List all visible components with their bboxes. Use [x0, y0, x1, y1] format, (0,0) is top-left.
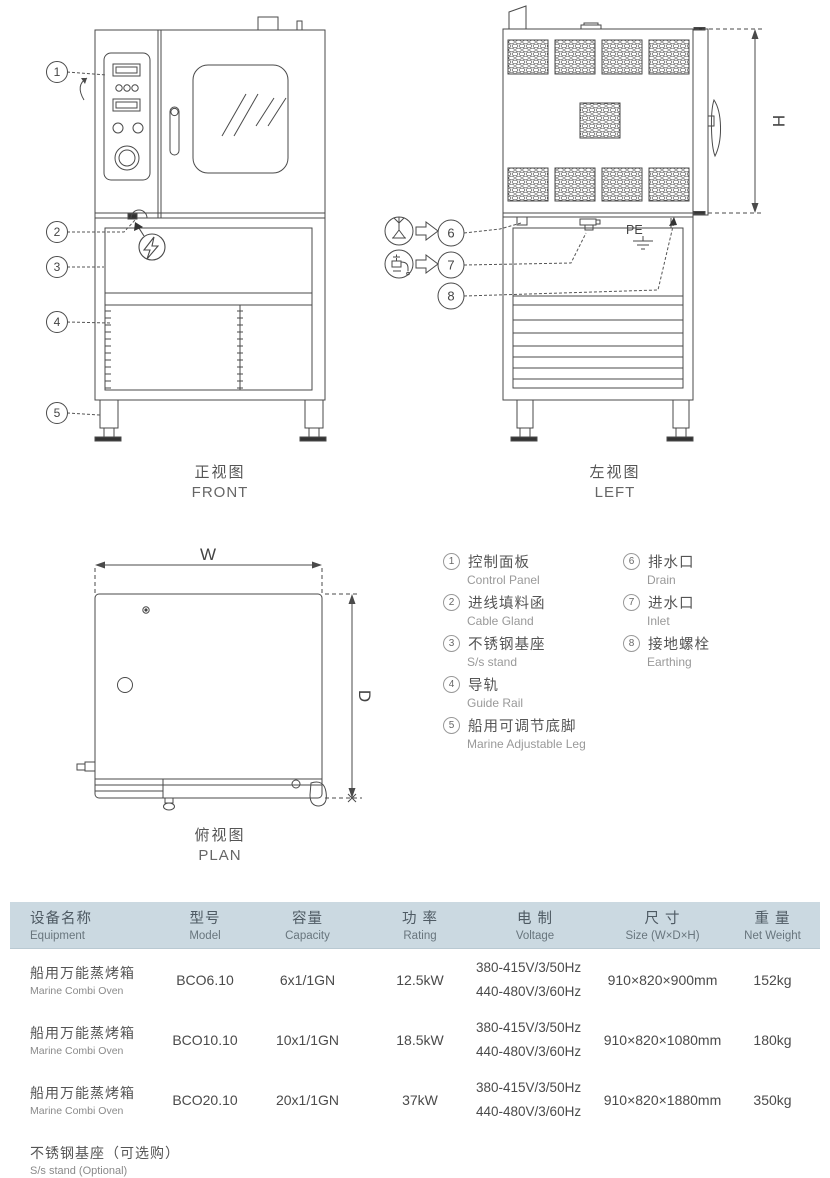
- cell-size: 910×820×900mm: [600, 972, 725, 988]
- plan-view-drawing: W D: [60, 538, 380, 823]
- spec-sheet: 1 2 3 4 5: [0, 0, 830, 1178]
- legend-item-cable-gland: 2进线填料函 Cable Gland: [443, 592, 628, 628]
- cell-voltage: 380-415V/3/50Hz 440-480V/3/60Hz: [470, 956, 600, 1004]
- cell-model: BCO6.10: [165, 972, 245, 988]
- side-pipe: [77, 762, 95, 771]
- oven-body-plan: [95, 594, 322, 798]
- table-row-bco10: 船用万能蒸烤箱 Marine Combi Oven BCO10.10 10x1/…: [10, 1009, 820, 1069]
- adjustable-legs-front: [95, 400, 326, 441]
- cell-rating: 37kW: [370, 1092, 470, 1108]
- legend-item-earthing: 8接地螺栓 Earthing: [623, 633, 808, 669]
- oven-body-front: [95, 30, 325, 218]
- cell-equipment: 船用万能蒸烤箱 Marine Combi Oven: [10, 963, 165, 997]
- floor-drain-symbol-icon: [385, 217, 413, 245]
- legend-item-guide-rail: 4导轨 Guide Rail: [443, 674, 628, 710]
- dim-label-w: W: [200, 545, 216, 564]
- door-strips-plan: [95, 779, 322, 798]
- guide-rail-ticks: [105, 311, 243, 388]
- legend-column-1: 1控制面板 Control Panel 2进线填料函 Cable Gland 3…: [443, 551, 628, 756]
- legend-num-7: 7: [623, 594, 640, 611]
- header-weight: 重 量Net Weight: [725, 907, 820, 942]
- cell-rating: 12.5kW: [370, 972, 470, 988]
- dimension-w: [95, 562, 322, 595]
- plan-view-label: 俯视图 PLAN: [145, 824, 295, 864]
- legend-num-5: 5: [443, 717, 460, 734]
- cell-model: BCO20.10: [165, 1092, 245, 1108]
- legend-item-inlet: 7进水口 Inlet: [623, 592, 808, 628]
- cell-equipment: 船用万能蒸烤箱 Marine Combi Oven: [10, 1023, 165, 1057]
- table-row-bco20: 船用万能蒸烤箱 Marine Combi Oven BCO20.10 20x1/…: [10, 1069, 820, 1129]
- cell-capacity: 10x1/1GN: [245, 1032, 370, 1048]
- water-tap-symbol-icon: [385, 250, 413, 278]
- header-equipment: 设备名称Equipment: [10, 907, 165, 942]
- header-voltage: 电 制Voltage: [470, 907, 600, 942]
- cell-size: 910×820×1880mm: [600, 1092, 725, 1108]
- table-footnote: 不锈钢基座（可选购） S/s stand (Optional): [10, 1143, 820, 1177]
- legend-item-ss-stand: 3不锈钢基座 S/s stand: [443, 633, 628, 669]
- stand-left: [503, 217, 693, 441]
- legend-num-2: 2: [443, 594, 460, 611]
- cell-weight: 152kg: [725, 972, 820, 988]
- left-view-drawing: 6 7 8 H PE: [375, 0, 830, 450]
- callout-2: 2: [54, 225, 61, 239]
- vent-panels: [508, 40, 689, 201]
- front-callouts: [47, 62, 68, 424]
- legend-num-6: 6: [623, 553, 640, 570]
- callout-7: 7: [447, 258, 454, 273]
- legend-num-4: 4: [443, 676, 460, 693]
- cell-weight: 350kg: [725, 1092, 820, 1108]
- callout-5: 5: [54, 406, 61, 420]
- header-capacity: 容量Capacity: [245, 907, 370, 942]
- header-model: 型号Model: [165, 907, 245, 942]
- door-window: [193, 65, 288, 173]
- spec-table: 设备名称Equipment 型号Model 容量Capacity 功 率Rati…: [10, 902, 820, 1177]
- door-edge-left: [693, 28, 721, 216]
- header-rating: 功 率Rating: [370, 907, 470, 942]
- legend-num-3: 3: [443, 635, 460, 652]
- earthing-label-pe: PE: [626, 223, 643, 237]
- cell-weight: 180kg: [725, 1032, 820, 1048]
- callout-6: 6: [447, 226, 454, 241]
- cell-rating: 18.5kW: [370, 1032, 470, 1048]
- legend-item-adjustable-leg: 5船用可调节底脚 Marine Adjustable Leg: [443, 715, 628, 751]
- legend-num-1: 1: [443, 553, 460, 570]
- legend-num-8: 8: [623, 635, 640, 652]
- front-view-label: 正视图 FRONT: [145, 461, 295, 501]
- callout-3: 3: [54, 260, 61, 274]
- left-view-label: 左视图 LEFT: [540, 461, 690, 501]
- spec-table-header: 设备名称Equipment 型号Model 容量Capacity 功 率Rati…: [10, 902, 820, 949]
- cell-capacity: 6x1/1GN: [245, 972, 370, 988]
- cell-voltage: 380-415V/3/50Hz 440-480V/3/60Hz: [470, 1016, 600, 1064]
- cell-capacity: 20x1/1GN: [245, 1092, 370, 1108]
- cell-equipment: 船用万能蒸烤箱 Marine Combi Oven: [10, 1083, 165, 1117]
- header-size: 尺 寸Size (W×D×H): [600, 907, 725, 942]
- legend-item-control-panel: 1控制面板 Control Panel: [443, 551, 628, 587]
- cell-model: BCO10.10: [165, 1032, 245, 1048]
- door-knob-plan: [164, 798, 175, 810]
- callout-4: 4: [54, 315, 61, 329]
- cell-size: 910×820×1080mm: [600, 1032, 725, 1048]
- door-handle-plan: [310, 782, 326, 806]
- front-view-drawing: 1 2 3 4 5: [40, 8, 370, 453]
- door-handle-front: [170, 107, 179, 155]
- cell-voltage: 380-415V/3/50Hz 440-480V/3/60Hz: [470, 1076, 600, 1124]
- dim-label-h: H: [769, 115, 788, 127]
- control-panel: [104, 53, 150, 180]
- legend-column-2: 6排水口 Drain 7进水口 Inlet 8接地螺栓 Earthing: [623, 551, 808, 674]
- adjustable-legs-left: [511, 400, 693, 441]
- flue: [509, 6, 526, 29]
- stand-front: [95, 218, 326, 441]
- callout-8: 8: [447, 289, 454, 304]
- table-row-bco6: 船用万能蒸烤箱 Marine Combi Oven BCO6.10 6x1/1G…: [10, 949, 820, 1009]
- door-handle-left: [711, 100, 720, 156]
- dim-label-d: D: [355, 690, 374, 702]
- callout-1: 1: [54, 65, 61, 79]
- legend-item-drain: 6排水口 Drain: [623, 551, 808, 587]
- dimension-h: [695, 29, 763, 213]
